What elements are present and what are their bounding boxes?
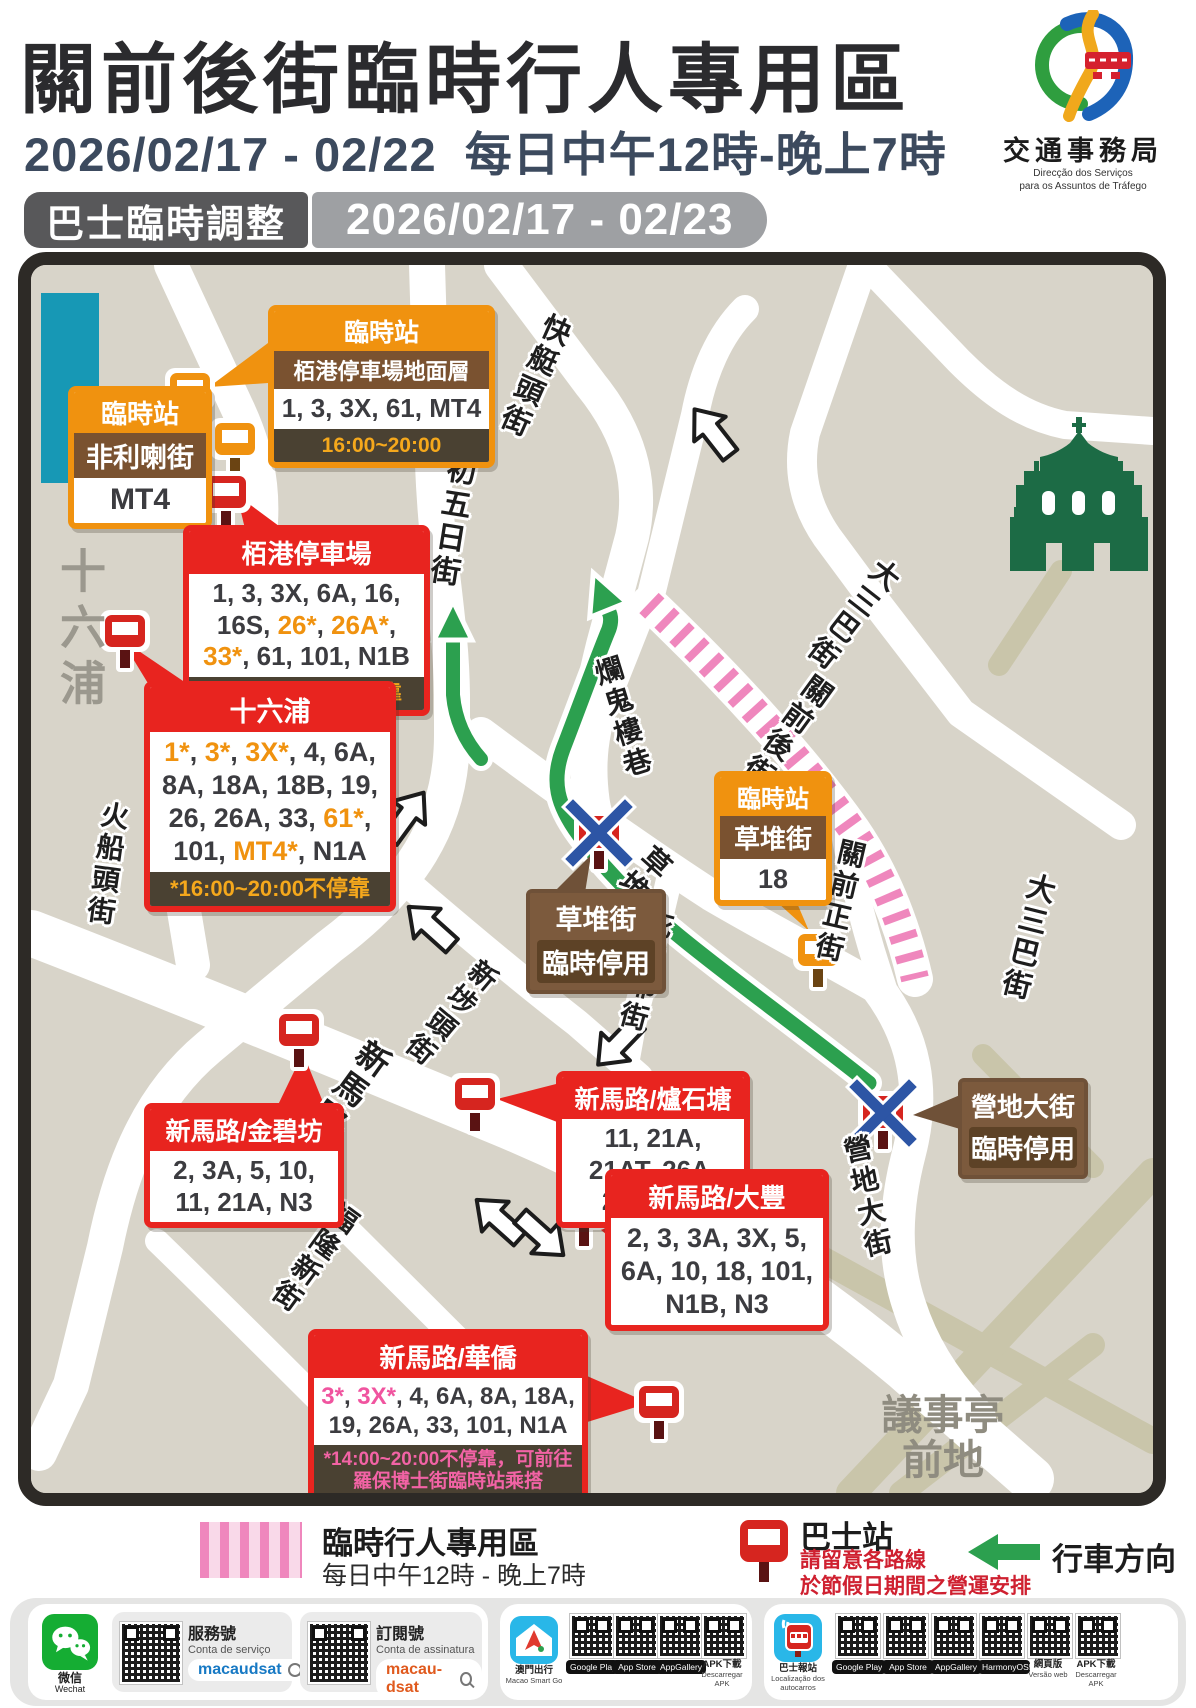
subscribe-account-subtitle: Conta de assinatura: [376, 1644, 482, 1656]
callout-closed-veng-tei: 營地大街 臨時停用: [958, 1078, 1088, 1179]
stop-name: 栢港停車場地面層: [274, 351, 489, 389]
service-account-subtitle: Conta de serviço: [188, 1644, 312, 1656]
qr-code: [1028, 1614, 1072, 1658]
legend-direction-arrow: [968, 1534, 1040, 1570]
service-account-card: 服務號 Conta de serviço macaudsat: [112, 1612, 292, 1692]
apk-download-caption: APK下載Descarregar APK: [1070, 1660, 1122, 1688]
event-time-range: 每日中午12時-晚上7時: [465, 128, 947, 181]
google-play-badge: Google Play: [566, 1660, 618, 1674]
callout-temp-chou-toi: 臨時站 草堆街 18: [714, 771, 832, 906]
wechat-label: 微信Wechat: [42, 1672, 98, 1695]
stop-name: 十六浦: [150, 687, 390, 732]
qr-code: [308, 1622, 370, 1684]
route-list: 1, 3, 3X, 6A, 16, 16S, 26*, 26A*, 33*, 6…: [189, 574, 424, 677]
stop-name: 營地大街: [962, 1082, 1084, 1127]
subscribe-account-title: 訂閱號: [376, 1620, 482, 1644]
page-title: 關前後街臨時行人專用區: [20, 18, 911, 128]
stop-name: 新馬路/金碧坊: [150, 1109, 338, 1151]
callout-tai-fung: 新馬路/大豐 2, 3, 3A, 3X, 5, 6A, 10, 18, 101,…: [605, 1169, 829, 1331]
legend-pedestrian-zone-time: 每日中午12時 - 晚上7時: [322, 1556, 586, 1592]
qr-code: [658, 1614, 702, 1658]
dsat-logo-icon: [1024, 10, 1142, 122]
wechat-icon: [42, 1614, 98, 1670]
map: 十月初五日街 快艇頭街 大三巴街 大三巴街 爛鬼樓巷 關前後街 關前正街 草堆街…: [18, 252, 1166, 1506]
stop-name: 栢港停車場: [189, 531, 424, 574]
time-note: *16:00~20:00不停靠: [150, 872, 390, 906]
callout-temp-pak-kong-ground: 臨時站 栢港停車場地面層 1, 3, 3X, 61, MT4 16:00~20:…: [268, 305, 495, 468]
route-list: 1, 3, 3X, 61, MT4: [274, 389, 489, 429]
web-version-caption: 網頁版Versão web: [1026, 1660, 1070, 1680]
callout-kam-pek: 新馬路/金碧坊 2, 3A, 5, 10, 11, 21A, N3: [144, 1103, 344, 1228]
stop-name: 新馬路/華僑: [314, 1335, 582, 1378]
closed-status: 臨時停用: [537, 940, 655, 983]
qr-code: [570, 1614, 614, 1658]
stop-name: 新馬路/爐石塘: [562, 1077, 744, 1119]
harmonyos-badge: HarmonyOS5: [978, 1660, 1030, 1674]
route-list: 2, 3, 3A, 3X, 5, 6A, 10, 18, 101, N1B, N…: [611, 1218, 823, 1325]
app-store-badge: App Store: [612, 1660, 662, 1674]
service-account-title: 服務號: [188, 1620, 312, 1644]
route-list: 18: [720, 859, 826, 900]
callout-sap-luk-pou: 十六浦 1*, 3*, 3X*, 4, 6A, 8A, 18A, 18B, 19…: [144, 681, 396, 912]
callout-wa-kiu: 新馬路/華僑 3*, 3X*, 4, 6A, 8A, 18A, 19, 26A,…: [308, 1329, 588, 1504]
callout-temp-fei-li-la: 臨時站 非利喇街 MT4: [68, 386, 212, 529]
apk-download-caption: APK下載Descarregar APK: [696, 1660, 748, 1688]
route-list: 3*, 3X*, 4, 6A, 8A, 18A, 19, 26A, 33, 10…: [314, 1378, 582, 1445]
legend-pedestrian-zone-swatch: [200, 1522, 302, 1578]
google-play-badge: Google Play: [832, 1660, 886, 1674]
bus-arrival-app-icon: [774, 1614, 822, 1662]
appgallery-badge: AppGallery: [930, 1660, 982, 1674]
search-icon: [460, 1672, 472, 1686]
qr-code: [836, 1614, 880, 1658]
area-label-sap-luk-pou: 十六浦: [47, 547, 113, 715]
event-date-range: 2026/02/17 - 02/22: [24, 128, 437, 181]
dsat-logo: 交通事務局 Direcção dos Serviçospara os Assun…: [978, 10, 1188, 193]
route-list: 2, 3A, 5, 10, 11, 21A, N3: [150, 1151, 338, 1222]
qr-code: [702, 1614, 746, 1658]
route-list: 1*, 3*, 3X*, 4, 6A, 8A, 18A, 18B, 19, 26…: [150, 732, 390, 872]
qr-code: [932, 1614, 976, 1658]
stop-name: 草堆街: [530, 893, 662, 940]
legend-bus-stop-icon: [736, 1514, 792, 1588]
route-list: MT4: [74, 478, 206, 523]
stop-name: 非利喇街: [74, 433, 206, 478]
subscribe-account-card: 訂閱號 Conta de assinatura macau-dsat: [300, 1612, 482, 1692]
qr-code: [1076, 1614, 1120, 1658]
callout-closed-chou-toi: 草堆街 臨時停用: [526, 889, 666, 994]
area-label-senado: 議事亭前地: [843, 1393, 1043, 1483]
app-store-badge: App Store: [882, 1660, 934, 1674]
temp-stop-badge: 臨時站: [274, 311, 489, 351]
time-note: 16:00~20:00: [274, 429, 489, 462]
bus-adjustment-label: 巴士臨時調整: [24, 192, 308, 248]
qr-code: [614, 1614, 658, 1658]
macao-smart-go-icon: [510, 1616, 558, 1664]
stop-name: 草堆街: [720, 816, 826, 859]
event-dates: 2026/02/17 - 02/22 每日中午12時-晚上7時: [24, 116, 947, 185]
service-account-id: macaudsat: [188, 1659, 312, 1681]
macao-smart-go-label: 澳門出行Macao Smart Go: [502, 1666, 566, 1686]
qr-code: [120, 1622, 182, 1684]
bus-stop-closed-chou-toi: [573, 807, 625, 873]
wechat-panel: 微信Wechat 服務號 Conta de serviço macaudsat …: [28, 1604, 488, 1700]
temp-stop-badge: 臨時站: [74, 392, 206, 433]
qr-code: [884, 1614, 928, 1658]
bus-arrival-app-label: 巴士報站Localização dos autocarros: [764, 1664, 832, 1692]
time-note: *14:00~20:00不停靠，可前往羅保博士街臨時站乘搭: [314, 1445, 582, 1499]
footer-bar: 微信Wechat 服務號 Conta de serviço macaudsat …: [10, 1598, 1186, 1706]
stop-name: 新馬路/大豐: [611, 1175, 823, 1218]
bus-adjustment-dates: 2026/02/17 - 02/23: [312, 192, 767, 248]
closed-status: 臨時停用: [969, 1127, 1077, 1168]
qr-code: [980, 1614, 1024, 1658]
legend-direction-label: 行車方向: [1052, 1534, 1176, 1579]
dsat-org-name: 交通事務局: [978, 129, 1188, 168]
dsat-org-name-pt: Direcção dos Serviçospara os Assuntos de…: [978, 168, 1188, 193]
busapp-panel: 巴士報站Localização dos autocarros Google Pl…: [764, 1604, 1178, 1700]
subscribe-account-id: macau-dsat: [376, 1659, 482, 1699]
temp-stop-badge: 臨時站: [720, 777, 826, 816]
bus-adjustment-banner: 巴士臨時調整 2026/02/17 - 02/23: [24, 192, 767, 248]
smartgo-panel: 澳門出行Macao Smart Go Google Play App Store…: [500, 1604, 752, 1700]
